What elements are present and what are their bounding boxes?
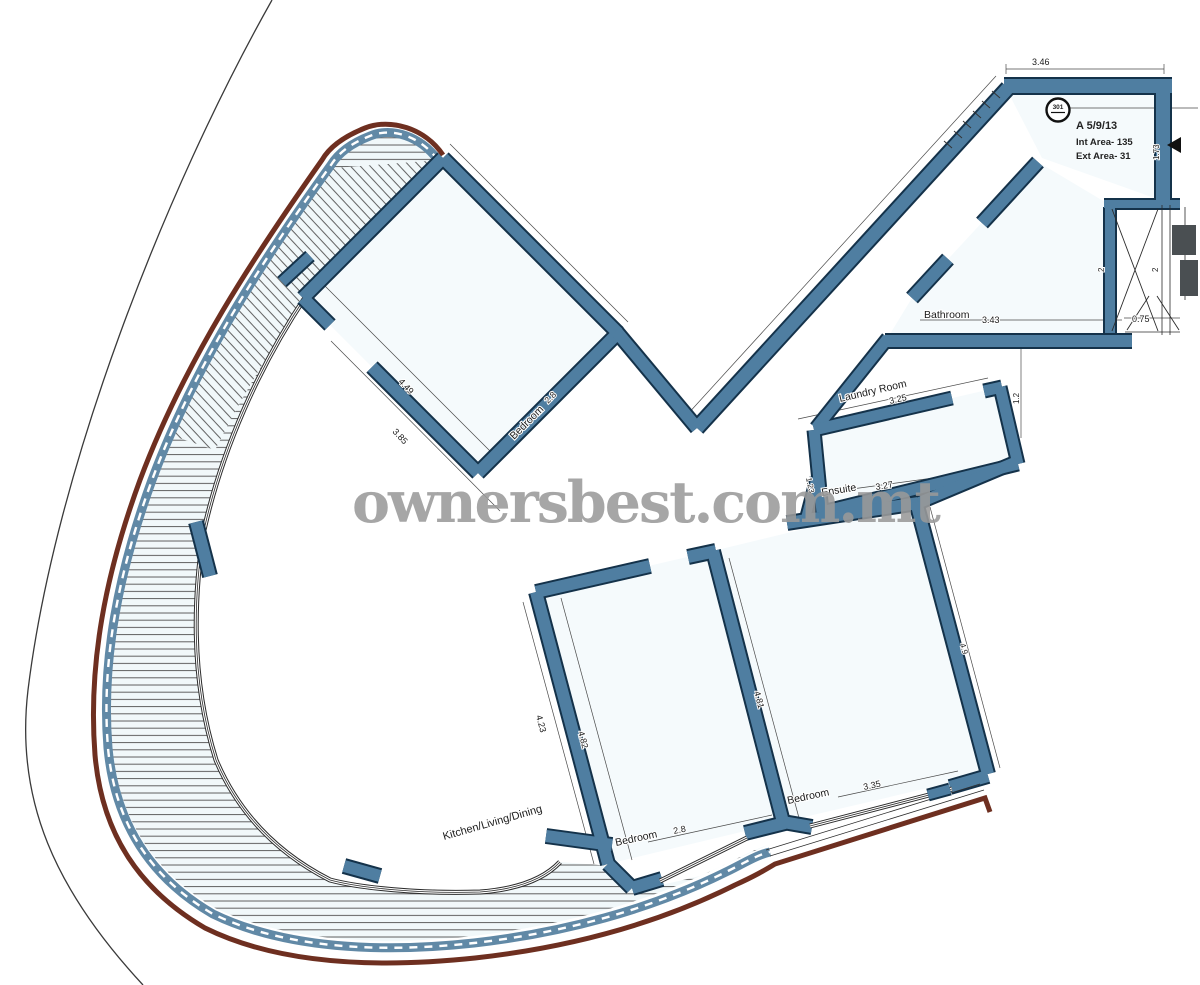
ext-area-text: Ext Area- 31 <box>1076 151 1131 162</box>
shaft-left-dim: 2 <box>1097 267 1106 272</box>
entry-depth-dim: 1.73 <box>1152 144 1161 160</box>
kitchen-label: Kitchen/Living/Dining <box>442 803 544 843</box>
bedroom-top-dim-outer: 3.85 <box>391 427 410 447</box>
entry-door-dim: 0.75 <box>1132 314 1150 324</box>
floor-plan-page: Bedroom 2.8 4.49 3.85 Bathroom 3.43 Laun… <box>0 0 1200 985</box>
structural-columns <box>1172 225 1198 296</box>
floor-plan-drawing: Bedroom 2.8 4.49 3.85 Bathroom 3.43 Laun… <box>0 0 1200 985</box>
hall-gap-dim: 1.2 <box>1012 392 1021 404</box>
bathroom-label: Bathroom <box>924 309 970 321</box>
bathroom-width: 3.43 <box>982 315 1000 325</box>
door-number-text: 301 <box>1053 104 1064 111</box>
shaft-right-dim: 2 <box>1151 267 1160 272</box>
bedroom-mid-dim-left: 4.23 <box>534 714 548 734</box>
unit-ref-text: A 5/9/13 <box>1076 120 1117 132</box>
int-area-text: Int Area- 135 <box>1076 137 1133 148</box>
watermark-text: ownersbest.com.mt <box>352 469 941 536</box>
top-wall-dim: 3.46 <box>1032 57 1050 67</box>
